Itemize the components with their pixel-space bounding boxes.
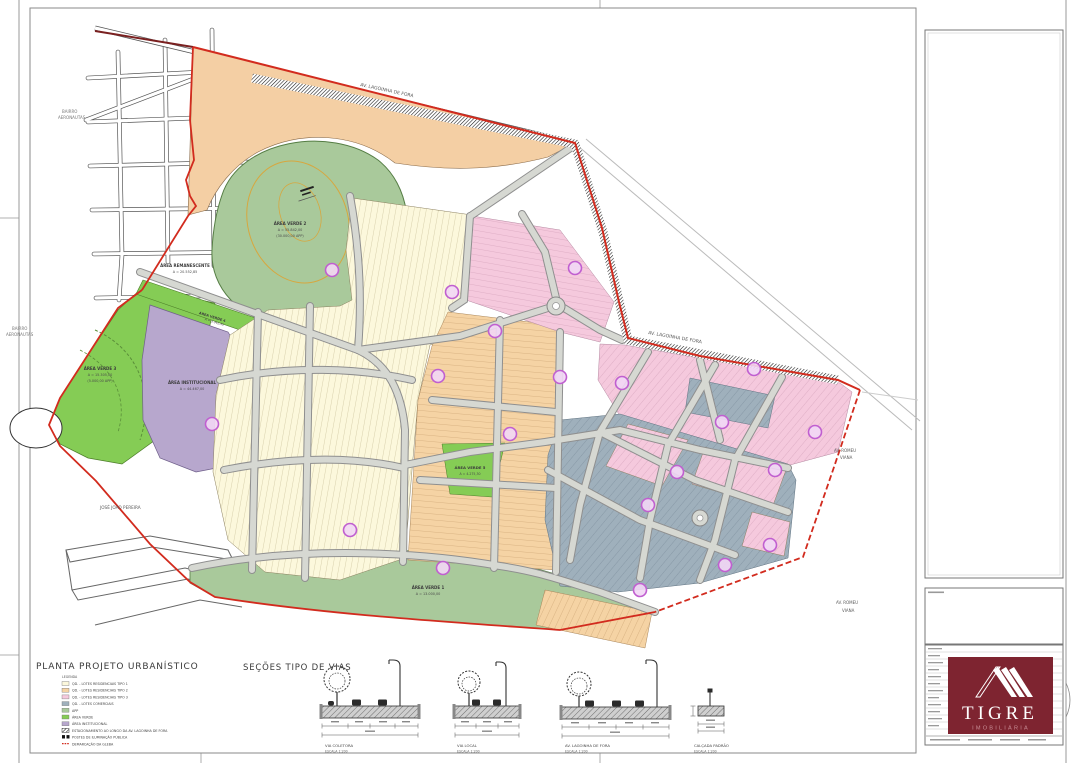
section-caption: VIA COLETORA <box>325 743 353 748</box>
legend-item-label: ÁREA INSTITUCIONAL <box>72 721 107 726</box>
street-label-av-romeu: AV. ROMEU <box>836 600 858 605</box>
bairro-label: AERONAUTAS <box>58 115 86 120</box>
legend-item-label: ÁREA VERDE <box>72 715 93 720</box>
legend-swatch <box>62 702 69 706</box>
quadra-marker <box>554 371 567 384</box>
legend-swatch <box>62 715 69 719</box>
legend-item: ÁREA VERDE <box>62 715 93 720</box>
legend-item-label: ESTACIONAMENTO AO LONGO DA AV. LAGOINHA … <box>72 729 168 733</box>
quadra-marker <box>769 464 782 477</box>
area-label: A = 4.275,30 <box>459 472 480 476</box>
legend-item: QD. - LOTES RESIDENCIAIS TIPO 3 <box>62 695 128 700</box>
area-label: A = 44.467,00 <box>180 387 205 391</box>
title-block-panel: TIGRE IMOBILIÁRIA <box>925 0 1070 763</box>
quadra-marker <box>764 539 777 552</box>
quadra-marker <box>504 428 517 441</box>
section-caption-scale: ESCALA 1:200 <box>325 750 348 754</box>
legend-item-label: QD. - LOTES RESIDENCIAIS TIPO 3 <box>72 695 128 699</box>
legend-swatch <box>62 735 65 738</box>
area-label: ÁREA VERDE 2 <box>274 221 307 226</box>
section-caption: AV. LAGOINHA DE FORA <box>565 743 610 748</box>
legend-swatch <box>62 695 69 699</box>
section-caption-scale: ESCALA 1:200 <box>694 750 717 754</box>
street-label-av-romeu: VIANA <box>840 455 853 460</box>
legend-item-label: QD. - LOTES RESIDENCIAIS TIPO 1 <box>72 682 128 686</box>
sections-title: SEÇÕES TIPO DE VIAS <box>243 661 351 673</box>
area-label: A = 20.552,85 <box>173 270 198 274</box>
legend-swatch <box>62 728 69 732</box>
section-caption: VIA LOCAL <box>457 743 478 748</box>
area-label: A = 15.305,00 <box>88 373 113 377</box>
area-label: ÁREA VERDE 1 <box>412 585 445 590</box>
quadra-marker <box>616 377 629 390</box>
brand-subtitle: IMOBILIÁRIA <box>972 725 1030 732</box>
section-caption-scale: ESCALA 1:200 <box>565 750 588 754</box>
panel-notes-box <box>925 588 1063 644</box>
quadra-marker <box>344 524 357 537</box>
bairro-label: BAIRRO <box>62 109 77 114</box>
area-label: A = 13.000,00 <box>416 592 441 596</box>
legend-item: POSTES DE ILUMINAÇÃO PÚBLICA <box>62 735 128 740</box>
legend-item-label: QD. - LOTES RESIDENCIAIS TIPO 2 <box>72 689 128 693</box>
fold-bracket <box>1066 683 1070 717</box>
area-label: ÁREA REMANESCENTE <box>160 263 210 268</box>
micro-text <box>928 592 944 594</box>
quadra-marker <box>809 426 822 439</box>
quadra-marker <box>432 370 445 383</box>
legend-item: ESTACIONAMENTO AO LONGO DA AV. LAGOINHA … <box>62 728 168 733</box>
area-label: (5.000,00 APP) <box>87 379 113 383</box>
legend-item: ÁREA INSTITUCIONAL <box>62 721 107 726</box>
legend-swatch <box>62 688 69 692</box>
legend-swatch <box>62 708 69 712</box>
street-label-jose-joao: JOSÉ JOÃO PEREIRA <box>99 505 141 510</box>
legend-item-label: QD. - LOTES COMERCIAIS <box>72 702 114 706</box>
legend-item: QD. - LOTES RESIDENCIAIS TIPO 2 <box>62 688 128 693</box>
plan-sheet-svg: BAIRRO AERONAUTAS BAIRRO AERONAUTAS AV. … <box>0 0 1080 763</box>
bairro-label: AERONAUTAS <box>6 332 34 337</box>
brand-logo: TIGRE IMOBILIÁRIA <box>948 657 1053 734</box>
legend-swatch <box>62 722 69 726</box>
legend-item-label: POSTES DE ILUMINAÇÃO PÚBLICA <box>72 735 128 740</box>
quadra-marker <box>446 286 459 299</box>
legend-swatch <box>62 682 69 686</box>
brand-name: TIGRE <box>962 703 1038 724</box>
street-label-av-romeu: AV. ROMEU <box>834 448 856 453</box>
legend-item: QD. - LOTES RESIDENCIAIS TIPO 1 <box>62 682 128 687</box>
plan-sheet: BAIRRO AERONAUTAS BAIRRO AERONAUTAS AV. … <box>0 0 1080 763</box>
quadra-marker <box>716 416 729 429</box>
quadra-marker <box>437 562 450 575</box>
quadra-marker <box>671 466 684 479</box>
legend-item-label: APP <box>72 709 78 713</box>
quadra-marker <box>489 325 502 338</box>
panel-empty-box <box>925 30 1063 578</box>
area-label: A = 55.842,00 <box>278 228 303 232</box>
legend-heading: LEGENDA <box>62 675 78 679</box>
area-label: (30.000,00 APP) <box>276 234 304 238</box>
quadra-marker <box>748 363 761 376</box>
area-label: ÁREA INSTITUCIONAL <box>168 380 217 385</box>
legend-item-label: DEMARCAÇÃO DA GLEBA <box>72 741 114 746</box>
quadra-marker <box>634 584 647 597</box>
quadra-marker <box>569 262 582 275</box>
quadra-marker <box>206 418 219 431</box>
quadra-marker <box>719 559 732 572</box>
section-caption: CALÇADA PADRÃO <box>694 743 729 748</box>
legend-swatch <box>67 735 70 738</box>
bairro-label: BAIRRO <box>12 326 27 331</box>
section-caption-scale: ESCALA 1:200 <box>457 750 480 754</box>
quadra-marker <box>642 499 655 512</box>
area-label: ÁREA VERDE 3 <box>84 366 117 371</box>
area-label: ÁREA VERDE 5 <box>455 465 486 470</box>
legend-title: PLANTA PROJETO URBANÍSTICO <box>36 660 199 672</box>
quadra-marker <box>326 264 339 277</box>
street-label-av-romeu: VIANA <box>842 608 855 613</box>
